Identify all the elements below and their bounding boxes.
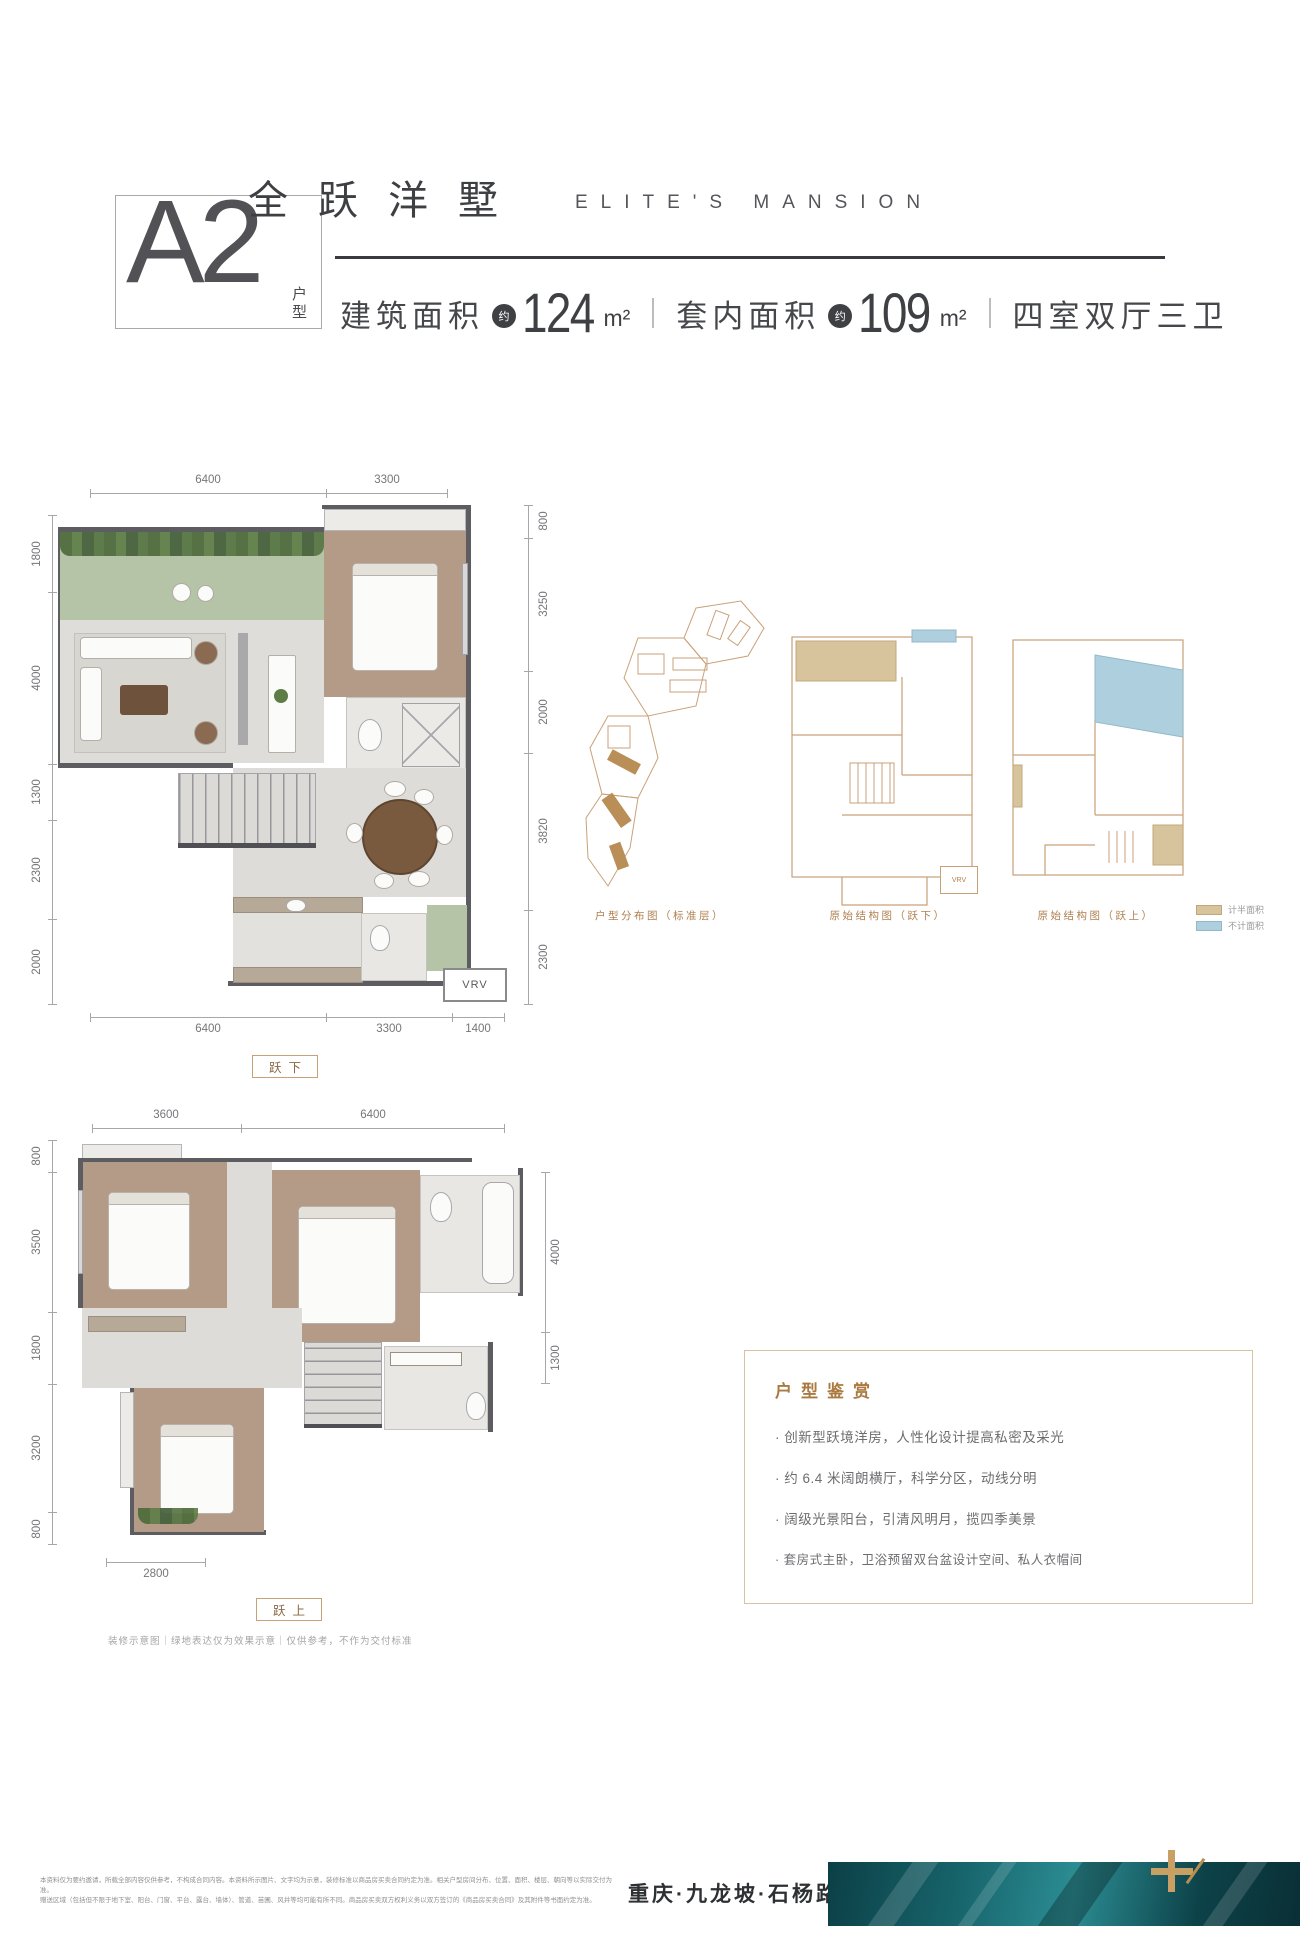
hallway: [227, 1162, 272, 1308]
dim-tick: [48, 1004, 57, 1005]
dim-label: 6400: [176, 474, 240, 486]
bed: [298, 1206, 396, 1324]
dim-label: 3300: [355, 474, 419, 486]
footer-disclaimer: 本资料仅为要约邀请，所载全部内容仅供参考，不构成合同内容。本资料所示图片、文字均…: [40, 1876, 618, 1906]
dim-tick: [326, 489, 327, 498]
dining-chair: [414, 789, 434, 805]
footer-brand-graphic: [828, 1862, 1300, 1926]
kitchen-island: [268, 655, 296, 753]
dim-tick: [504, 1013, 505, 1022]
dim-label: 1800: [31, 1316, 45, 1380]
dim-label: 1300: [31, 760, 45, 824]
dim-tick: [524, 671, 533, 672]
dim-tick: [504, 1124, 505, 1133]
toilet: [358, 719, 382, 751]
plant: [274, 689, 288, 703]
garden-patch: [427, 905, 467, 971]
wall: [488, 1342, 493, 1432]
plant-band: [60, 532, 324, 556]
half-area-fill: [1153, 825, 1183, 865]
structure-upper-caption: 原始结构图（跃上）: [1001, 908, 1191, 923]
garden-chair: [197, 585, 214, 602]
dim-line-top-lower: [90, 493, 448, 494]
dim-label: 800: [31, 1124, 45, 1188]
graphic-streak: [1026, 1862, 1129, 1926]
bed: [352, 563, 438, 671]
dim-tick: [92, 1124, 93, 1133]
area2-value: 109: [858, 285, 930, 341]
kitchen-counter: [233, 967, 363, 983]
structure-lower-caption: 原始结构图（跃下）: [788, 908, 988, 923]
dim-tick: [48, 1172, 57, 1173]
disclaimer-line: 本资料仅为要约邀请，所载全部内容仅供参考，不构成合同内容。本资料所示图片、文字均…: [40, 1876, 618, 1896]
area2-label: 套内面积: [676, 291, 820, 336]
spec-row: 建筑面积 约 124 m² 套内面积 约 109 m² 四室双厅三卫: [340, 280, 1180, 346]
dining-chair: [408, 871, 430, 887]
vrv-box: VRV: [443, 968, 507, 1002]
area2-unit: m²: [940, 305, 967, 332]
dim-tick: [90, 489, 91, 498]
dim-tick: [541, 1383, 550, 1384]
dim-label: 2000: [31, 930, 45, 994]
dim-label: 3200: [31, 1416, 45, 1480]
page-title-en: ELITE'S MANSION: [575, 192, 933, 214]
dim-line-right-lower: [528, 505, 529, 1005]
dim-tick: [452, 1013, 453, 1022]
dim-tick: [326, 1013, 327, 1022]
vrv-box-mini: VRV: [940, 866, 978, 894]
approx-badge: 约: [492, 304, 516, 328]
dim-line-top-upper: [92, 1128, 505, 1129]
dim-tick: [106, 1558, 107, 1567]
armchair: [194, 721, 218, 745]
dim-line-left-upper: [52, 1140, 53, 1545]
window: [462, 563, 468, 655]
wall: [58, 763, 233, 768]
dim-line-right-upper: [545, 1172, 546, 1384]
armchair: [194, 641, 218, 665]
plan-note: 装修示意图｜绿地表达仅为效果示意｜仅供参考，不作为交付标准: [108, 1633, 413, 1647]
sink: [286, 899, 306, 912]
legend-no-area: 不计面积: [1196, 919, 1264, 932]
no-area-pool-fill: [1095, 655, 1183, 737]
structure-diagram-upper: [1005, 615, 1195, 910]
dim-label: 2000: [538, 680, 552, 744]
dim-tick: [48, 1384, 57, 1385]
appreciation-bullet: · 创新型跃境洋房，人性化设计提高私密及采光: [775, 1426, 1222, 1446]
site-highlighted-buildings: [602, 749, 641, 870]
bed-headboard: [353, 564, 437, 576]
dim-tick: [48, 919, 57, 920]
dim-label: 3250: [538, 572, 552, 636]
half-area-fill: [796, 641, 896, 681]
toilet: [430, 1192, 452, 1222]
dim-label: 6400: [176, 1023, 240, 1035]
coffee-table: [120, 685, 168, 715]
dim-tick: [524, 1004, 533, 1005]
dim-label: 3600: [134, 1109, 198, 1121]
dim-label: 6400: [341, 1109, 405, 1121]
balcony: [324, 509, 466, 531]
plan-upper-label: 跃上: [256, 1598, 322, 1621]
dim-tick: [48, 764, 57, 765]
appreciation-bullet: · 约 6.4 米阔朗横厅，科学分区，动线分明: [775, 1467, 1222, 1487]
legend-label: 不计面积: [1228, 919, 1264, 932]
dining-table: [362, 799, 438, 875]
gold-cross-logo: [1151, 1868, 1193, 1875]
tv-wall: [238, 633, 248, 745]
bed-headboard: [299, 1207, 395, 1219]
bathtub: [482, 1182, 514, 1284]
site-plan-caption: 户型分布图（标准层）: [560, 908, 760, 923]
dining-chair: [374, 873, 394, 889]
dim-label: 3820: [538, 799, 552, 863]
no-area-fill: [912, 630, 956, 642]
spec-separator: [652, 298, 654, 328]
bed-headboard: [109, 1193, 189, 1205]
dim-tick: [241, 1124, 242, 1133]
legend-label: 计半面积: [1228, 903, 1264, 916]
dim-tick: [90, 1013, 91, 1022]
unit-code: A2: [126, 174, 258, 310]
half-area-fill: [1013, 765, 1022, 807]
dim-label: 1800: [31, 522, 45, 586]
dim-label: 4000: [31, 646, 45, 710]
dim-label: 3300: [357, 1023, 421, 1035]
unit-type-label: 户型: [288, 286, 309, 322]
sofa: [80, 667, 102, 741]
spec-separator: [989, 298, 991, 328]
stair-edge: [304, 1424, 382, 1428]
stairs: [304, 1342, 382, 1428]
dim-tick: [524, 910, 533, 911]
dim-tick: [48, 1312, 57, 1313]
toilet: [370, 925, 390, 951]
dim-tick: [48, 820, 57, 821]
header-divider: [335, 256, 1165, 259]
site-plan-diagram: [578, 598, 773, 898]
dim-tick: [524, 505, 533, 506]
floor-plan-upper: [72, 1140, 525, 1545]
appreciation-title: 户型鉴赏: [775, 1377, 1222, 1402]
dim-line-bottom-upper: [106, 1562, 206, 1563]
dim-label: 2300: [538, 925, 552, 989]
wardrobe: [88, 1316, 186, 1332]
dim-tick: [48, 1544, 57, 1545]
plant-band: [138, 1508, 198, 1524]
toilet: [466, 1392, 486, 1420]
bed: [108, 1192, 190, 1290]
dim-tick: [48, 1512, 57, 1513]
dim-label: 800: [31, 1497, 45, 1561]
graphic-streak: [946, 1862, 1023, 1926]
garden-chair: [172, 583, 191, 602]
dim-line-left-lower: [52, 515, 53, 1005]
graphic-streak: [856, 1862, 945, 1926]
sofa: [80, 637, 192, 659]
rooms-label: 四室双厅三卫: [1013, 291, 1229, 336]
dim-tick: [524, 753, 533, 754]
dim-line-bottom-lower: [90, 1017, 505, 1018]
dim-tick: [48, 515, 57, 516]
legend-swatch-blue: [1196, 921, 1222, 931]
floorplan-poster: { "header": { "unit_code": "A2", "unit_l…: [0, 0, 1300, 1951]
legend-swatch-tan: [1196, 905, 1222, 915]
double-vanity: [390, 1352, 462, 1366]
dim-tick: [447, 489, 448, 498]
dim-label: 800: [538, 489, 552, 553]
legend-half-area: 计半面积: [1196, 903, 1264, 916]
plan-lower-label: 跃下: [252, 1055, 318, 1078]
dining-chair: [346, 823, 363, 843]
disclaimer-line: 赠送区域（包括但不限于地下室、阳台、门窗、平台、露台、墙体）、管道、苗圃、风井等…: [40, 1896, 618, 1906]
approx-badge: 约: [828, 304, 852, 328]
dim-label: 1300: [550, 1326, 564, 1390]
appreciation-bullet: · 套房式主卧，卫浴预留双台盆设计空间、私人衣帽间: [775, 1549, 1222, 1568]
area1-value: 124: [522, 285, 594, 341]
graphic-streak: [1191, 1862, 1274, 1926]
shower: [402, 703, 460, 767]
dim-tick: [524, 538, 533, 539]
dim-tick: [48, 1140, 57, 1141]
dim-tick: [48, 592, 57, 593]
dim-tick: [541, 1332, 550, 1333]
area1-unit: m²: [603, 305, 630, 332]
area1-label: 建筑面积: [340, 291, 484, 336]
stair-edge: [178, 843, 316, 848]
floor-plan-lower: [58, 505, 510, 1005]
dim-label: 3500: [31, 1210, 45, 1274]
dining-chair: [384, 781, 406, 797]
stairs: [178, 773, 316, 847]
dim-tick: [541, 1172, 550, 1173]
dim-label: 4000: [550, 1220, 564, 1284]
appreciation-bullet: · 阔级光景阳台，引清风明月，揽四季美景: [775, 1508, 1222, 1528]
balcony: [120, 1392, 134, 1488]
dim-label: 1400: [446, 1023, 510, 1035]
window: [78, 1190, 83, 1274]
bathroom-small: [361, 913, 427, 981]
dining-chair: [436, 825, 453, 845]
dim-tick: [205, 1558, 206, 1567]
bed: [160, 1424, 234, 1514]
unit-appreciation-box: 户型鉴赏 · 创新型跃境洋房，人性化设计提高私密及采光 · 约 6.4 米阔朗横…: [744, 1350, 1253, 1604]
page-title-cn: 全跃洋墅: [248, 168, 528, 226]
project-location: 重庆·九龙坡·石杨路: [628, 1878, 840, 1908]
dim-label: 2800: [124, 1568, 188, 1580]
bed-headboard: [161, 1425, 233, 1437]
dim-label: 2300: [31, 838, 45, 902]
